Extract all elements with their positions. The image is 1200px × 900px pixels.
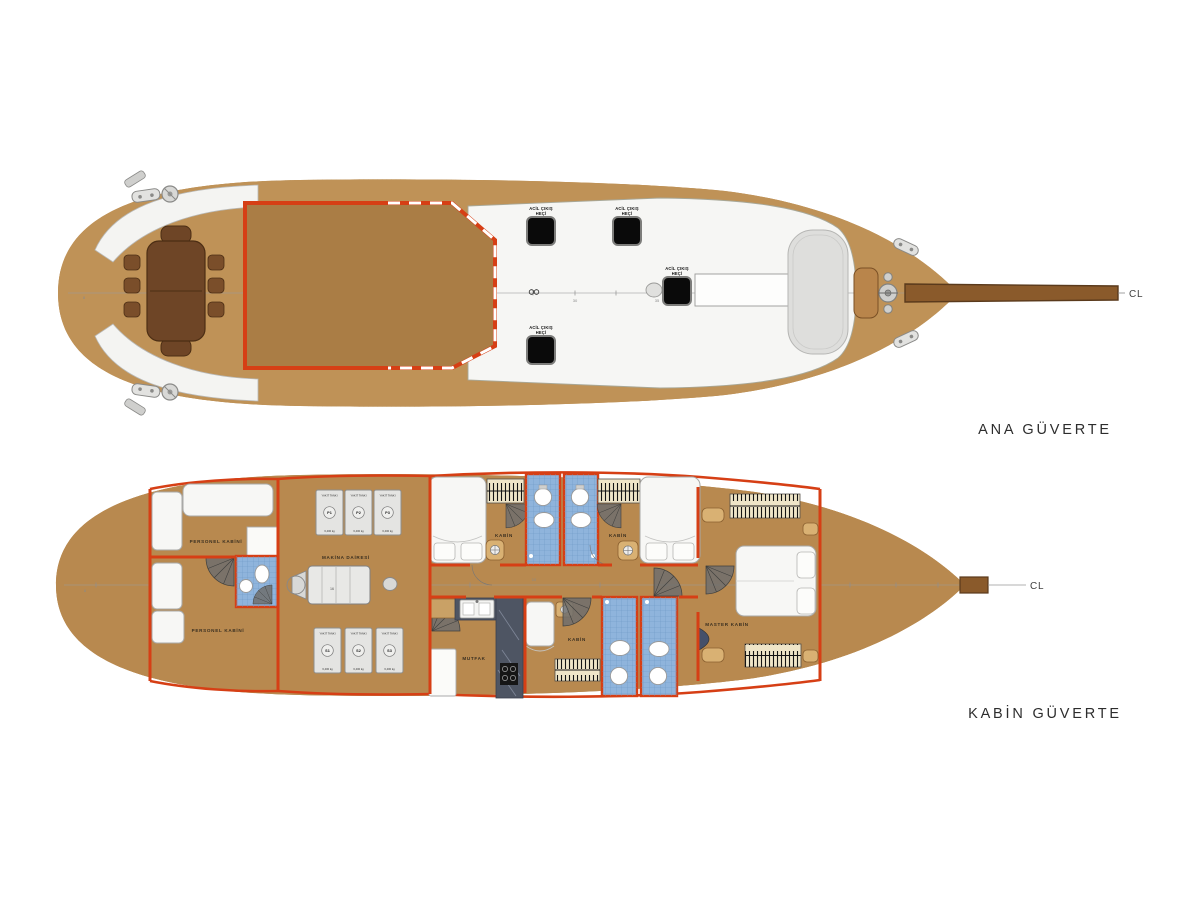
chair bbox=[124, 255, 140, 270]
pillow bbox=[673, 543, 694, 560]
svg-text:6,400 kg: 6,400 kg bbox=[353, 667, 364, 671]
toilet-icon bbox=[649, 642, 669, 657]
cabin-deck-title: KABİN GÜVERTE bbox=[968, 704, 1122, 722]
svg-text:YAKIT TANKI: YAKIT TANKI bbox=[382, 632, 398, 636]
bench bbox=[803, 650, 818, 662]
room-label-guest-cabin: KABİN bbox=[609, 532, 627, 538]
single-bed bbox=[526, 602, 554, 646]
sink-icon bbox=[649, 667, 666, 684]
crew-bed bbox=[152, 563, 182, 609]
fairlead-icon bbox=[124, 398, 147, 416]
crew-bed bbox=[183, 484, 273, 516]
toilet-icon bbox=[610, 641, 630, 656]
svg-text:6,400 kg: 6,400 kg bbox=[324, 529, 335, 533]
bathroom bbox=[526, 474, 560, 565]
room-label-guest-cabin: KABİN bbox=[568, 636, 586, 642]
svg-text:YAKIT TANKI: YAKIT TANKI bbox=[320, 632, 336, 636]
fairlead-icon bbox=[124, 170, 147, 188]
svg-text:HEÇİ: HEÇİ bbox=[672, 271, 683, 276]
svg-text:HEÇİ: HEÇİ bbox=[622, 211, 633, 216]
bathroom bbox=[602, 597, 637, 696]
svg-text:S1: S1 bbox=[325, 649, 330, 653]
toilet-icon bbox=[534, 513, 554, 528]
engine-number: 16 bbox=[330, 587, 334, 591]
bathroom bbox=[641, 597, 677, 696]
svg-text:6,400 kg: 6,400 kg bbox=[384, 667, 395, 671]
main-deck-title: ANA GÜVERTE bbox=[978, 420, 1112, 438]
drain-icon bbox=[605, 600, 609, 604]
bow-sunpad bbox=[788, 230, 848, 354]
room-label-guest-cabin: KABİN bbox=[495, 532, 513, 538]
svg-text:YAKIT TANKI: YAKIT TANKI bbox=[322, 494, 338, 498]
svg-text:P1: P1 bbox=[327, 511, 332, 515]
fuel-tank: YAKIT TANKI P1 6,400 kg bbox=[316, 490, 343, 535]
bench bbox=[803, 523, 818, 535]
toilet-icon bbox=[571, 513, 591, 528]
drain-icon bbox=[645, 600, 649, 604]
svg-text:P2: P2 bbox=[356, 511, 361, 515]
centerline-label: CL bbox=[1129, 289, 1143, 300]
room-label-galley: MUTFAK bbox=[462, 656, 485, 661]
main-deck-plan: 30 35 40 8 ACİL ÇIKIŞ HEÇİ ACİL ÇIKIŞ HE… bbox=[58, 170, 1143, 420]
cabin-deck-plan: 8 10 bbox=[56, 465, 1044, 705]
svg-text:6,400 kg: 6,400 kg bbox=[353, 529, 364, 533]
generator-icon bbox=[383, 578, 397, 591]
fridge bbox=[429, 649, 456, 696]
sink-icon bbox=[571, 488, 588, 505]
bench bbox=[702, 508, 724, 522]
svg-text:S3: S3 bbox=[387, 649, 392, 653]
stem-block bbox=[960, 577, 988, 593]
room-label-crew-cabin: PERSONEL KABİNİ bbox=[192, 627, 245, 633]
crew-bed bbox=[152, 611, 184, 643]
room-label-engine-room: MAKİNA DAİRESİ bbox=[322, 554, 370, 560]
centerline-label: CL bbox=[1030, 581, 1044, 592]
bench bbox=[702, 648, 724, 662]
galley-cabinet bbox=[431, 599, 457, 618]
room-label-crew-cabin: PERSONEL KABİNİ bbox=[190, 538, 243, 544]
bowsprit bbox=[905, 284, 1118, 302]
bathroom bbox=[564, 474, 598, 565]
frame-number: 35 bbox=[655, 298, 660, 303]
svg-text:HEÇİ: HEÇİ bbox=[536, 330, 547, 335]
fuel-tank: YAKIT TANKI S1 6,400 kg bbox=[314, 628, 341, 673]
svg-text:6,400 kg: 6,400 kg bbox=[322, 667, 333, 671]
crew-bed bbox=[152, 492, 182, 550]
svg-text:HEÇİ: HEÇİ bbox=[536, 211, 547, 216]
svg-text:YAKIT TANKI: YAKIT TANKI bbox=[351, 632, 367, 636]
chair bbox=[124, 278, 140, 293]
yacht-deck-plan: 30 35 40 8 ACİL ÇIKIŞ HEÇİ ACİL ÇIKIŞ HE… bbox=[0, 0, 1200, 900]
toilet-icon bbox=[255, 565, 269, 583]
frame-number: 10 bbox=[532, 577, 537, 582]
chair bbox=[208, 278, 224, 293]
svg-text:YAKIT TANKI: YAKIT TANKI bbox=[351, 494, 367, 498]
deckhouse: İÇECEK DOLABI bbox=[245, 203, 497, 369]
svg-text:YAKIT TANKI: YAKIT TANKI bbox=[380, 494, 396, 498]
frame-number: 30 bbox=[573, 298, 578, 303]
sink-icon bbox=[240, 580, 253, 593]
fuel-tank: YAKIT TANKI S3 6,400 kg bbox=[376, 628, 403, 673]
anchor-windlass-icon bbox=[854, 268, 898, 318]
drain-icon bbox=[529, 554, 533, 558]
fuel-tank: YAKIT TANKI P2 6,400 kg bbox=[345, 490, 372, 535]
pillow bbox=[797, 588, 815, 614]
pillow bbox=[461, 543, 482, 560]
chair bbox=[124, 302, 140, 317]
sink-icon bbox=[534, 488, 551, 505]
crew-desk bbox=[247, 527, 277, 556]
pillow bbox=[797, 552, 815, 578]
chair bbox=[208, 302, 224, 317]
sink-icon bbox=[610, 667, 627, 684]
pillow bbox=[434, 543, 455, 560]
pillow bbox=[646, 543, 667, 560]
galley-sink bbox=[460, 600, 494, 618]
fuel-tank: YAKIT TANKI P3 6,400 kg bbox=[374, 490, 401, 535]
room-label-master-cabin: MASTER KABİN bbox=[705, 621, 749, 627]
chair bbox=[208, 255, 224, 270]
deckhouse-wall bbox=[245, 203, 495, 368]
svg-text:P3: P3 bbox=[385, 511, 390, 515]
fuel-tank: YAKIT TANKI S2 6,400 kg bbox=[345, 628, 372, 673]
stove-icon bbox=[500, 663, 518, 685]
svg-text:6,400 kg: 6,400 kg bbox=[382, 529, 393, 533]
deck-vent bbox=[646, 283, 662, 297]
svg-text:S2: S2 bbox=[356, 649, 361, 653]
